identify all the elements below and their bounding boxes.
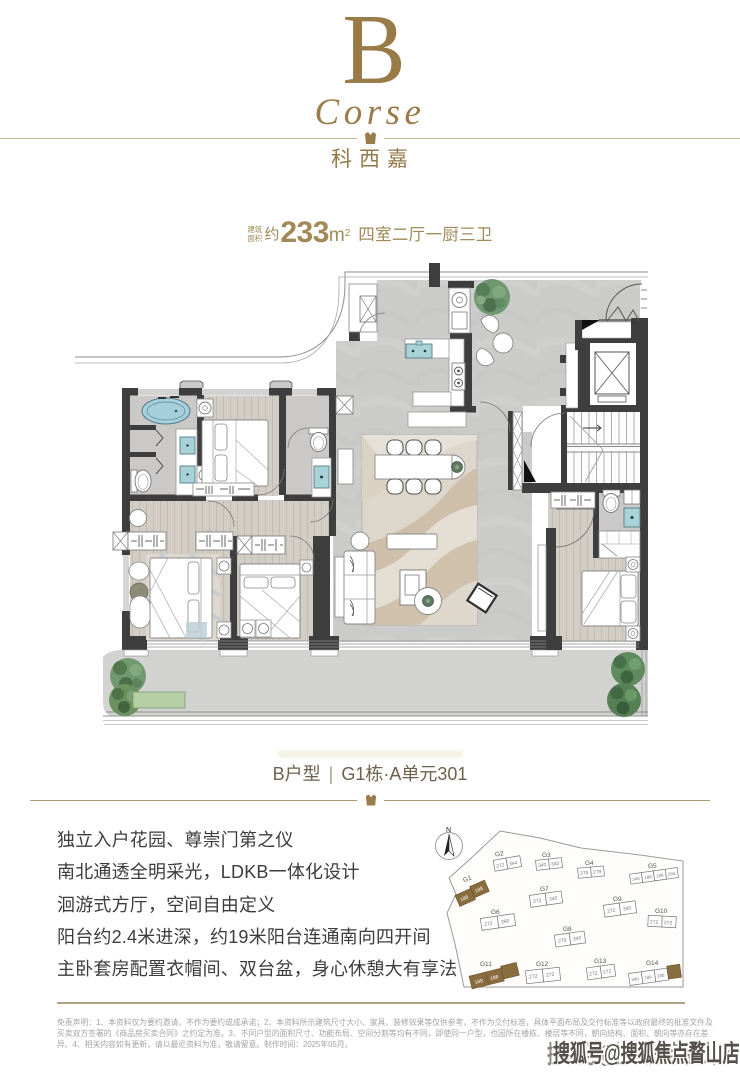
svg-text:279: 279: [580, 870, 589, 877]
svg-text:272: 272: [603, 969, 612, 976]
svg-text:N: N: [446, 827, 451, 834]
svg-text:272: 272: [484, 921, 493, 928]
svg-text:272: 272: [650, 919, 659, 925]
svg-text:G11: G11: [480, 961, 492, 968]
svg-text:G6: G6: [491, 909, 500, 916]
svg-text:340: 340: [623, 905, 632, 912]
svg-text:340: 340: [538, 862, 547, 869]
svg-text:272: 272: [533, 898, 542, 905]
svg-text:G14: G14: [646, 960, 659, 967]
svg-text:272: 272: [529, 974, 538, 981]
svg-text:279: 279: [558, 937, 567, 944]
svg-text:G7: G7: [540, 886, 549, 893]
svg-text:272: 272: [607, 908, 616, 915]
svg-text:G5: G5: [648, 863, 657, 870]
svg-text:G13: G13: [594, 958, 607, 965]
svg-text:340: 340: [573, 935, 582, 942]
svg-text:G9: G9: [613, 896, 622, 903]
svg-text:272: 272: [546, 972, 555, 979]
svg-text:340: 340: [549, 896, 558, 903]
svg-text:G4: G4: [585, 860, 594, 867]
svg-text:279: 279: [593, 869, 602, 876]
svg-text:G3: G3: [542, 852, 551, 859]
svg-text:272: 272: [589, 970, 598, 977]
svg-text:340: 340: [551, 861, 560, 868]
svg-text:360: 360: [501, 918, 510, 925]
svg-text:272: 272: [664, 920, 673, 926]
svg-text:G12: G12: [536, 961, 549, 968]
svg-text:G10: G10: [655, 908, 668, 915]
svg-text:G8: G8: [563, 926, 572, 933]
